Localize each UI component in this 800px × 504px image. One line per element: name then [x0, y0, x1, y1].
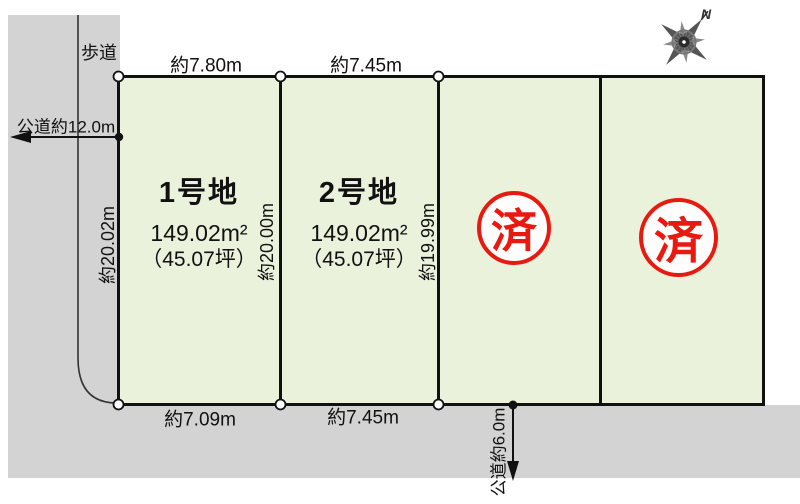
- plot-1-info: 1号地 149.02m² （45.07坪）: [141, 178, 257, 272]
- plot-1-area-tsubo: （45.07坪）: [141, 248, 257, 272]
- sold-stamp-plot-4: 済: [639, 198, 718, 277]
- plot-1-area: 149.02m²: [141, 221, 257, 245]
- dim-plot2-right: 約19.99m: [414, 203, 440, 281]
- dim-plot1-top: 約7.80m: [170, 51, 242, 78]
- dim-plot1-bottom: 約7.09m: [164, 405, 236, 432]
- sold-stamp-plot-3: 済: [477, 191, 551, 265]
- plot-2-area-tsubo: （45.07坪）: [301, 248, 417, 272]
- compass-north-label: N: [701, 6, 711, 22]
- plot-2-info: 2号地 149.02m² （45.07坪）: [301, 178, 417, 272]
- plot-2-area: 149.02m²: [301, 221, 417, 245]
- sidewalk-label: 歩道: [81, 39, 117, 65]
- land-plot-diagram: 1号地 149.02m² （45.07坪） 2号地 149.02m² （45.0…: [0, 0, 800, 504]
- plot-2-title: 2号地: [301, 178, 417, 208]
- west-road-label: 公道約12.0m: [17, 113, 115, 138]
- dim-plot2-top: 約7.45m: [330, 51, 402, 78]
- dim-plot1-left: 約20.02m: [94, 206, 120, 284]
- dim-plot2-bottom: 約7.45m: [327, 403, 399, 430]
- south-road-label: 公道約6.0m: [485, 408, 510, 497]
- dim-plot1-right: 約20.00m: [253, 203, 279, 281]
- road-south: [8, 405, 800, 478]
- plot-1-title: 1号地: [141, 178, 257, 208]
